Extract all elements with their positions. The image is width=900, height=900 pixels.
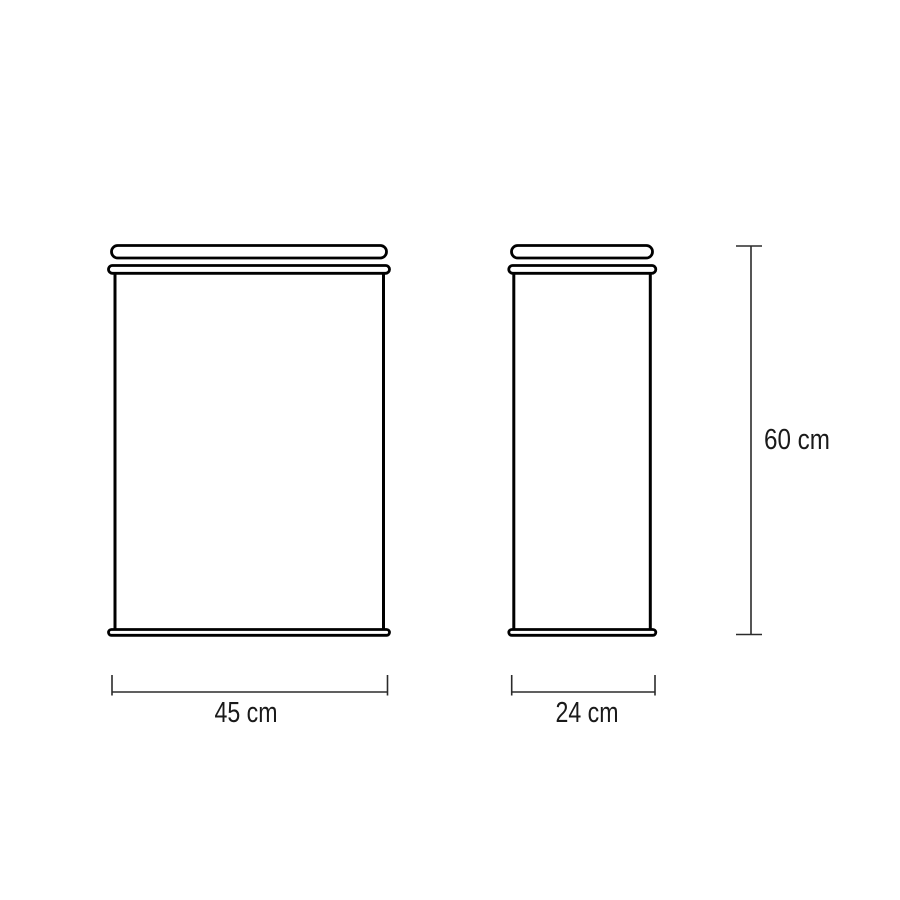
depth-dimension: 24 cm: [512, 675, 655, 729]
side-view-lid: [512, 246, 653, 259]
depth-dimension-label: 24 cm: [556, 697, 619, 729]
front-view-lid: [112, 246, 387, 259]
width-dimension-label: 45 cm: [215, 697, 278, 729]
height-dimension-label: 60 cm: [764, 424, 830, 456]
width-dimension: 45 cm: [112, 675, 388, 729]
front-view-body: [115, 273, 384, 630]
dimension-diagram: 45 cm 24 cm 60 cm: [0, 0, 900, 900]
side-view: [509, 246, 656, 636]
side-view-rim: [509, 266, 656, 274]
side-view-body: [514, 273, 651, 630]
front-view: [109, 246, 390, 636]
side-view-base: [509, 630, 656, 636]
height-dimension: 60 cm: [736, 246, 830, 635]
front-view-rim: [109, 266, 390, 274]
front-view-base: [109, 630, 390, 636]
diagram-canvas: 45 cm 24 cm 60 cm: [0, 0, 900, 900]
